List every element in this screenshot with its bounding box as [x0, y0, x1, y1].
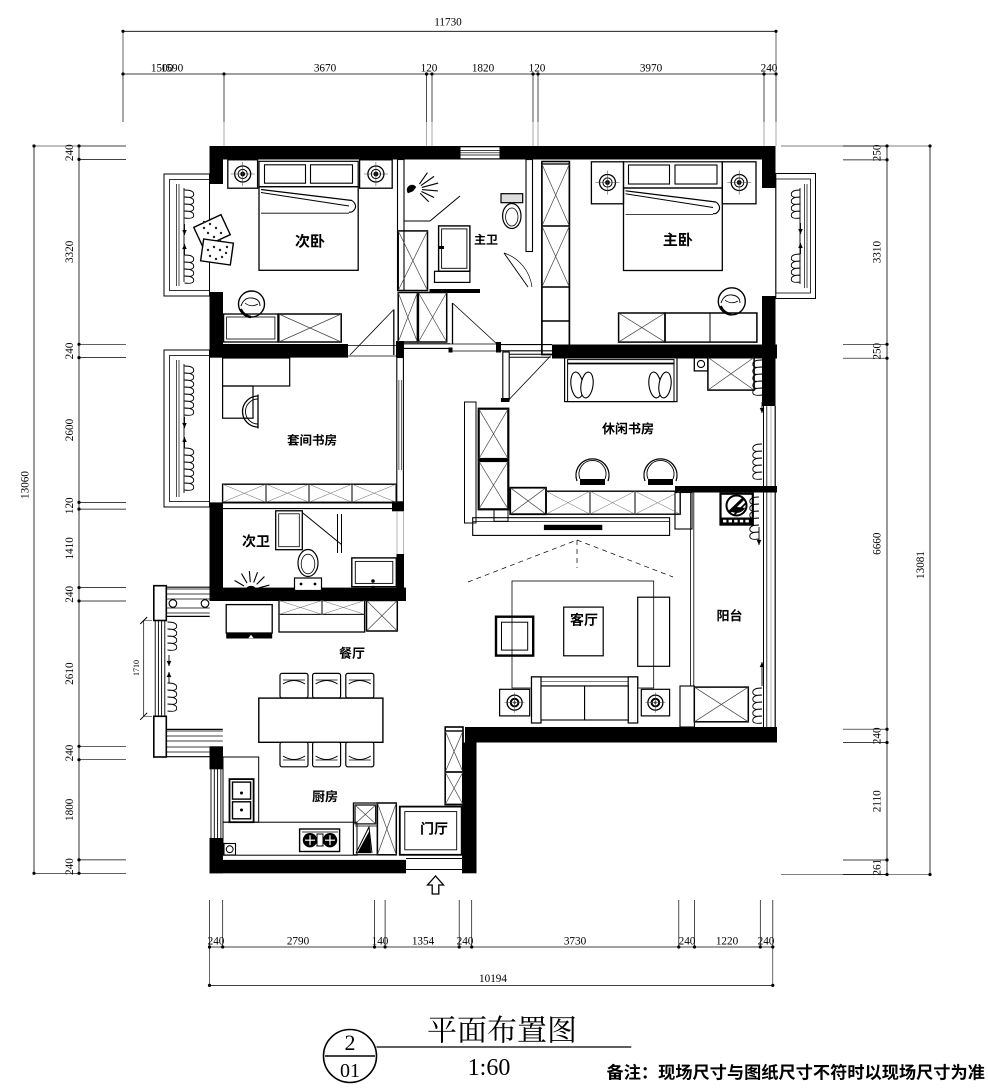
svg-text:240: 240: [758, 936, 775, 948]
svg-text:1820: 1820: [472, 63, 495, 75]
svg-text:240: 240: [457, 936, 474, 948]
svg-text:1354: 1354: [412, 936, 435, 948]
svg-text:3970: 3970: [640, 63, 663, 75]
svg-text:3310: 3310: [872, 241, 884, 264]
svg-text:240: 240: [64, 744, 76, 761]
svg-text:13081: 13081: [915, 551, 927, 579]
svg-text:240: 240: [679, 936, 696, 948]
svg-text:3320: 3320: [64, 240, 76, 263]
svg-text:1:60: 1:60: [468, 1055, 511, 1081]
svg-text:6660: 6660: [872, 532, 884, 555]
svg-text:3730: 3730: [564, 936, 587, 948]
svg-text:250: 250: [872, 144, 884, 161]
svg-text:140: 140: [372, 936, 389, 948]
svg-text:2110: 2110: [872, 790, 884, 812]
svg-text:240: 240: [64, 144, 76, 161]
svg-text:01: 01: [340, 1060, 360, 1082]
svg-text:2600: 2600: [64, 418, 76, 441]
svg-text:120: 120: [421, 63, 438, 75]
svg-text:261: 261: [872, 859, 884, 876]
svg-text:1410: 1410: [64, 537, 76, 560]
svg-text:3670: 3670: [314, 63, 337, 75]
svg-text:240: 240: [64, 586, 76, 603]
svg-text:10194: 10194: [479, 973, 507, 985]
svg-text:120: 120: [64, 497, 76, 514]
svg-text:240: 240: [761, 63, 778, 75]
svg-text:11730: 11730: [434, 17, 462, 29]
svg-text:13060: 13060: [20, 471, 32, 499]
svg-text:240: 240: [64, 858, 76, 875]
svg-text:2790: 2790: [287, 936, 310, 948]
svg-text:240: 240: [872, 727, 884, 744]
svg-text:1800: 1800: [64, 798, 76, 821]
svg-text:240: 240: [64, 342, 76, 359]
svg-text:250: 250: [872, 342, 884, 359]
svg-text:120: 120: [529, 63, 546, 75]
svg-text:1710: 1710: [132, 660, 141, 676]
svg-text:240: 240: [208, 936, 225, 948]
svg-text:2610: 2610: [64, 662, 76, 685]
svg-text:1220: 1220: [716, 936, 739, 948]
svg-text:1590: 1590: [161, 63, 184, 75]
svg-text:2: 2: [345, 1030, 356, 1055]
